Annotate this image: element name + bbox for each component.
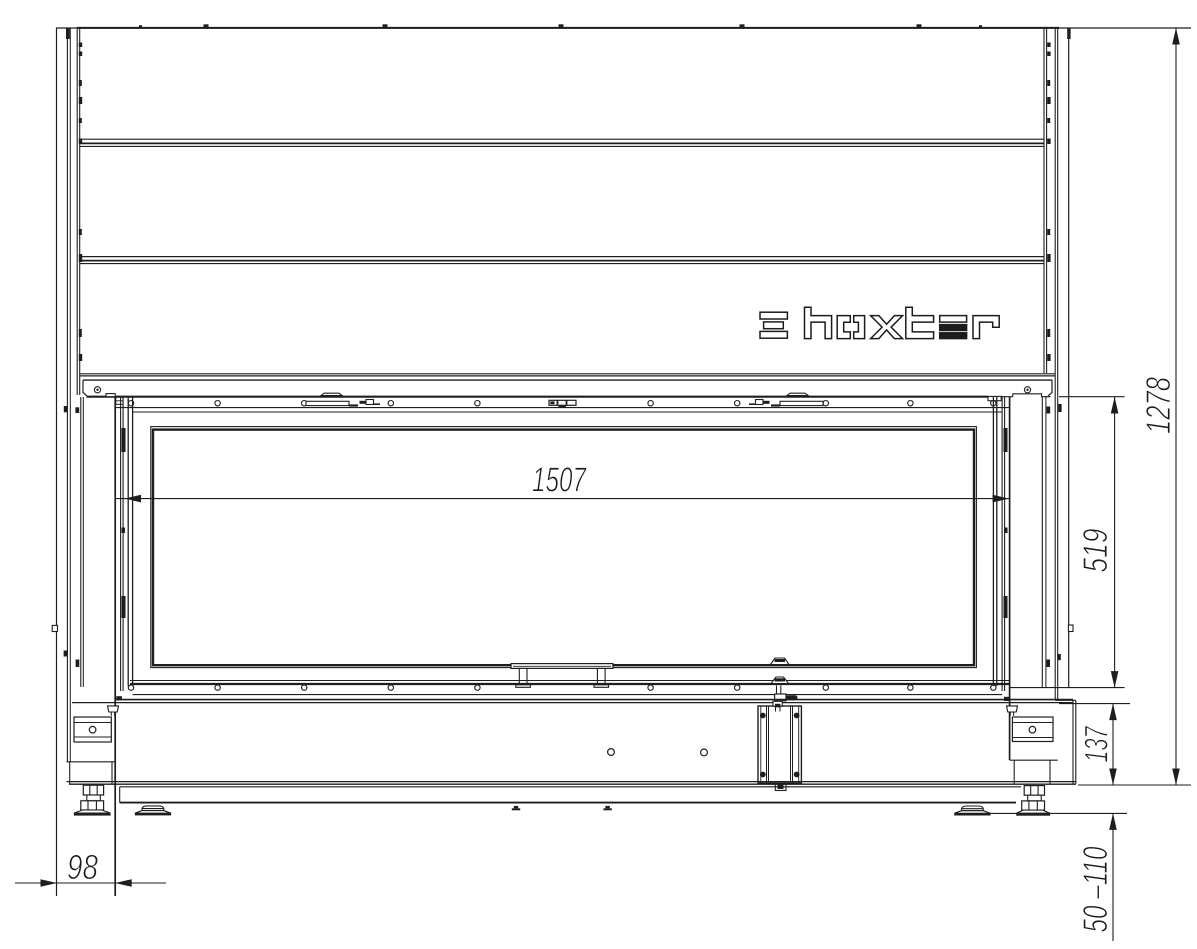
svg-text:1278: 1278 — [1140, 377, 1178, 434]
svg-text:98: 98 — [67, 848, 98, 887]
svg-text:50 –110: 50 –110 — [1077, 847, 1115, 933]
svg-text:1507: 1507 — [532, 461, 587, 500]
svg-text:137: 137 — [1078, 725, 1115, 762]
svg-text:519: 519 — [1077, 529, 1115, 573]
